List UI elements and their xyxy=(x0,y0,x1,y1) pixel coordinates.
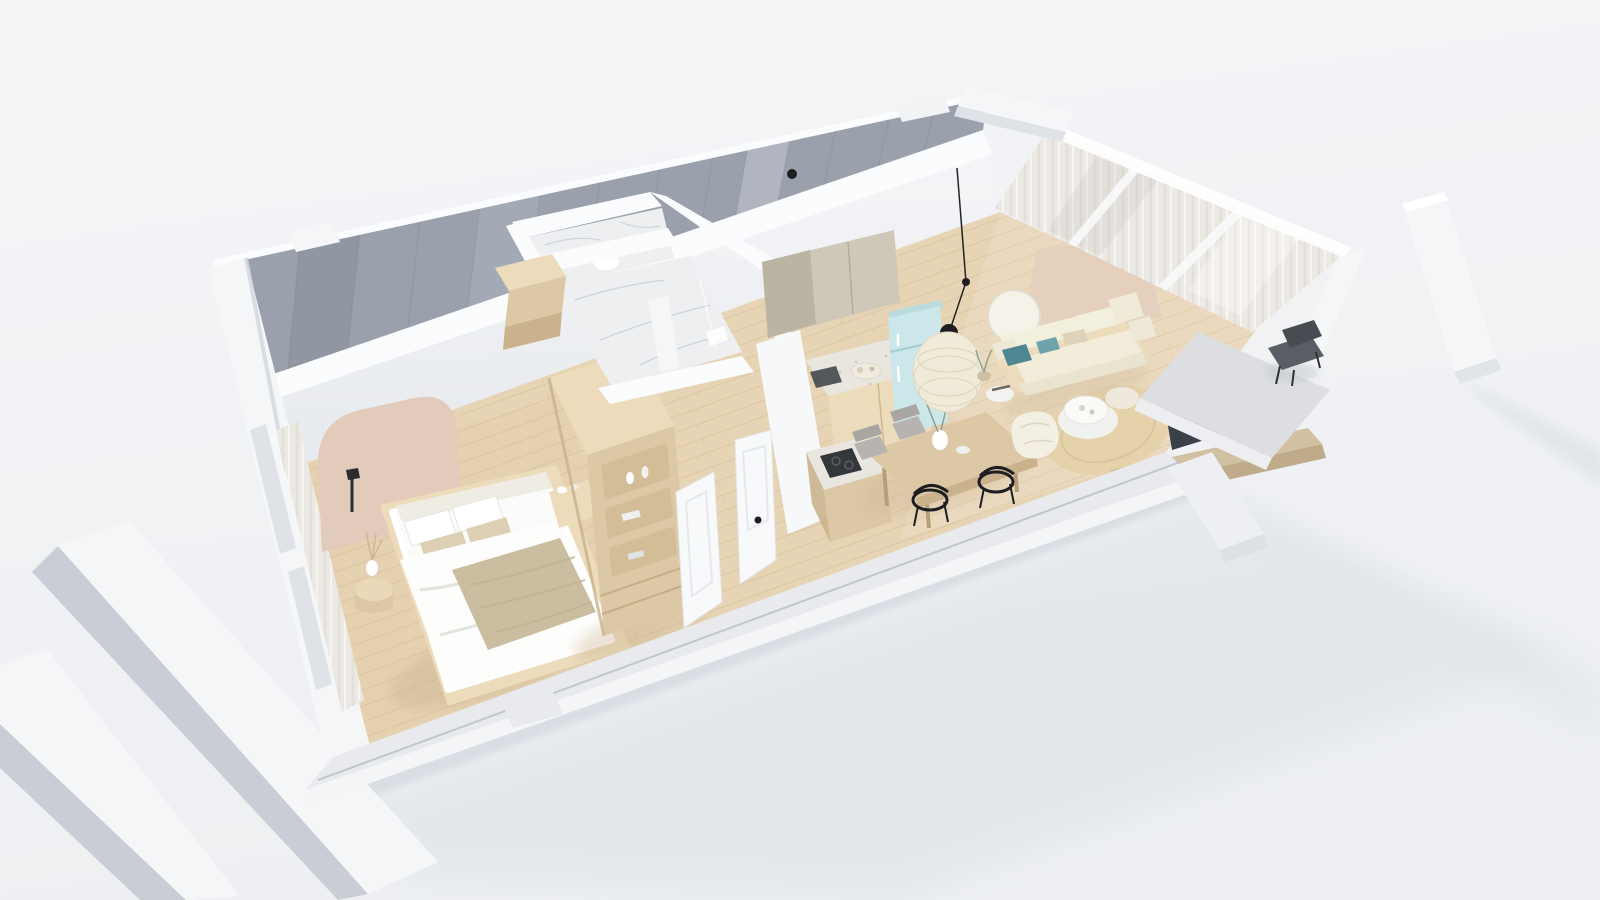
vase xyxy=(366,560,378,576)
wall-spotlight xyxy=(787,169,797,179)
apartment-3d-render xyxy=(0,0,1600,900)
coffee-table-top xyxy=(1064,396,1108,424)
pedestal-table-top xyxy=(355,579,393,601)
table-vase xyxy=(932,430,948,450)
render-canvas xyxy=(0,0,1600,900)
entry-door xyxy=(735,430,776,584)
wall-sconce-head xyxy=(346,468,360,480)
door-handle xyxy=(755,517,762,524)
bean-bag-pouf xyxy=(1011,411,1058,458)
plant-pot xyxy=(977,371,991,381)
coffee-table-small xyxy=(1105,387,1139,409)
breakfast-tray xyxy=(851,363,881,379)
